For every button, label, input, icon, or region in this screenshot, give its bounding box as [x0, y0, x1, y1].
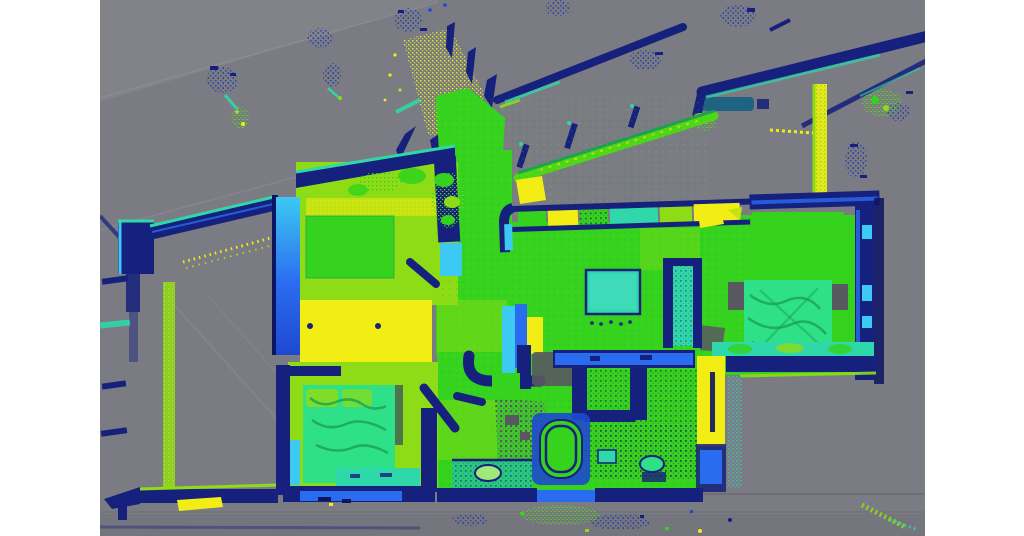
- letterbox-right: [925, 0, 1024, 536]
- point-cloud-canvas[interactable]: [0, 0, 1024, 536]
- kitchen-yellow-patch: [516, 176, 546, 204]
- point-cloud-viewer: [0, 0, 1024, 536]
- letterbox-left: [0, 0, 100, 536]
